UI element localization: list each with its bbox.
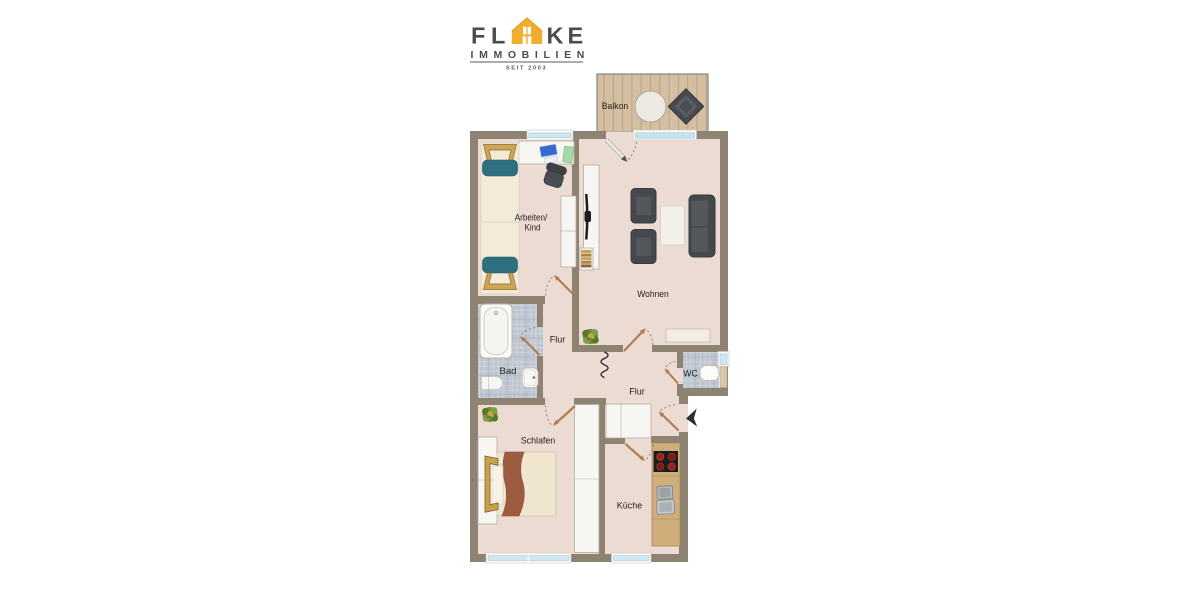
svg-text:Wohnen: Wohnen xyxy=(637,289,669,300)
svg-text:E: E xyxy=(568,23,584,49)
svg-text:K: K xyxy=(547,23,564,49)
svg-text:Küche: Küche xyxy=(617,501,643,512)
svg-text:SEIT 2003: SEIT 2003 xyxy=(506,66,547,72)
svg-text:Kind: Kind xyxy=(525,223,541,234)
svg-text:IMMOBILIEN: IMMOBILIEN xyxy=(471,49,591,61)
svg-text:Balkon: Balkon xyxy=(602,101,629,112)
svg-text:WC: WC xyxy=(683,369,698,380)
svg-text:L: L xyxy=(491,23,505,49)
svg-text:Flur: Flur xyxy=(550,335,566,346)
svg-text:Bad: Bad xyxy=(500,366,517,377)
svg-text:F: F xyxy=(471,23,485,49)
svg-text:Schlafen: Schlafen xyxy=(521,436,556,447)
svg-text:Flur: Flur xyxy=(629,387,645,398)
